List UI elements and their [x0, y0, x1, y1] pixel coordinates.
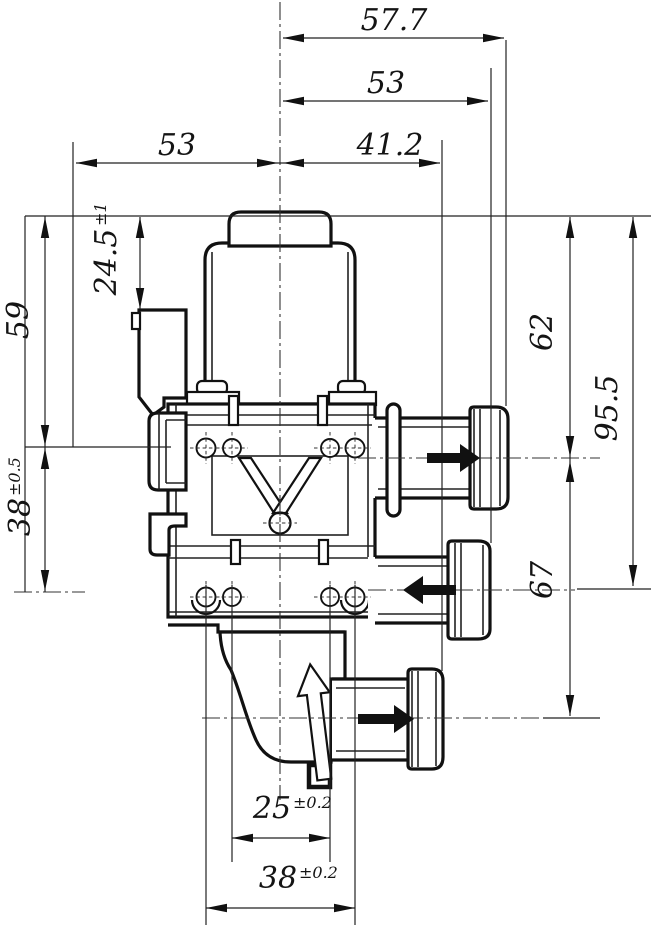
dim-top-overall-label: 57.7 [361, 3, 429, 38]
svg-text:±0.2: ±0.2 [299, 863, 338, 882]
dim-top-to-mid-port-label: 53 [367, 66, 405, 101]
dim-left-upper-label: 59 [1, 301, 36, 339]
connector-tab [132, 313, 140, 329]
svg-text:25: 25 [252, 791, 291, 826]
svg-text:±1: ±1 [91, 202, 110, 226]
svg-text:±0.2: ±0.2 [293, 793, 332, 812]
svg-text:38: 38 [259, 861, 297, 896]
dim-left-to-center-label: 53 [158, 128, 196, 163]
svg-text:67: 67 [525, 560, 560, 599]
valve-technical-drawing: 57.7 53 53 41.2 24.5 ±1 59 38 ±0.5 62 95… [0, 0, 651, 928]
svg-text:59: 59 [1, 301, 36, 339]
dim-bottom-inner-holes-label: 25 ±0.2 [252, 791, 332, 826]
drawing-canvas: 57.7 53 53 41.2 24.5 ±1 59 38 ±0.5 62 95… [0, 0, 651, 928]
svg-text:±0.5: ±0.5 [5, 457, 24, 496]
dim-right-mid-port-label: 95.5 [590, 375, 625, 442]
left-clip-bracket [149, 413, 186, 490]
svg-text:62: 62 [525, 313, 560, 351]
dim-port-spacing-label: 67 [525, 560, 560, 599]
dim-right-upper-port-label: 62 [525, 313, 560, 351]
dim-center-to-bottom-port-label: 41.2 [356, 128, 424, 163]
svg-text:24.5: 24.5 [89, 229, 124, 297]
valve-outline [132, 212, 508, 787]
electrical-connector [139, 310, 186, 415]
svg-text:38: 38 [3, 498, 38, 536]
dim-bottom-outer-holes-label: 38 ±0.2 [259, 861, 338, 896]
svg-text:95.5: 95.5 [590, 375, 625, 442]
dim-left-lower-label: 38 ±0.5 [3, 457, 38, 536]
